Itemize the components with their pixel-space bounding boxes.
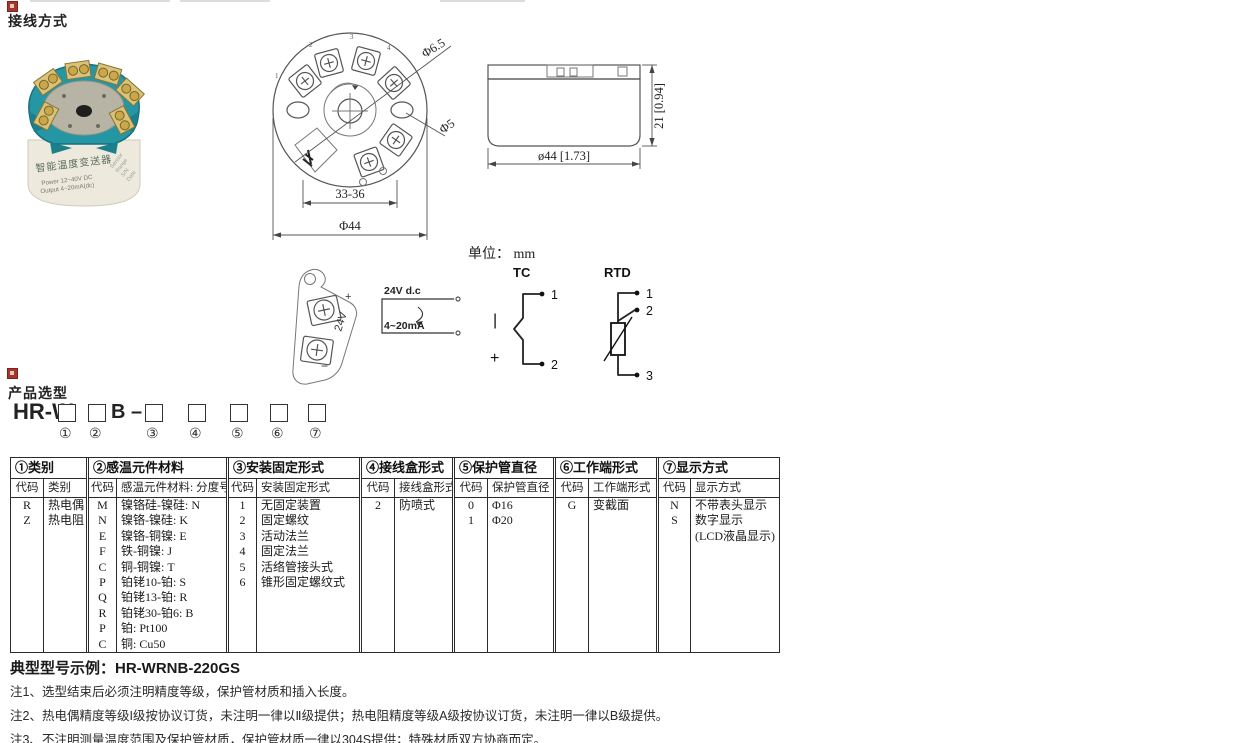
note-1: 注1、选型结束后必须注明精度等级，保护管材质和插入长度。 [10,681,354,700]
tc-terminal-1: 1 [551,288,558,302]
table-cell: 防喷式 [399,498,452,513]
table-cell: R [89,606,116,621]
table-cell: 铂铑30-铂6: B [121,606,226,621]
table-cell: C [89,560,116,575]
table-cell: Z [11,513,43,528]
table-group-junction-box: ④接线盒形式 代码 接线盒形式 2 防喷式 [362,458,455,652]
model-digit-5: ⑤ [231,425,244,442]
table-cell: E [89,529,116,544]
table-cell: 活动法兰 [261,529,359,544]
table-cell: 5 [229,560,256,575]
table-cell: 铜: Cu50 [121,637,226,652]
table-cell [659,529,690,544]
table-group-header: ②感温元件材料 [89,458,226,479]
table-subheader-label: 工作端形式 [589,479,656,497]
table-group-header: ④接线盒形式 [362,458,452,479]
table-cell: N [89,513,116,528]
table-cell: 变截面 [593,498,656,513]
table-cell: 固定法兰 [261,544,359,559]
table-cell: 固定螺纹 [261,513,359,528]
model-code-box-5 [230,404,248,422]
table-subheader-label: 显示方式 [691,479,779,497]
table-cell: 4 [229,544,256,559]
side-view-drawing: 21 [0.94] ø44 [1.73] [475,42,670,177]
table-subheader-code: 代码 [362,479,395,497]
table-subheader-label: 安装固定形式 [257,479,359,497]
table-subheader-label: 感温元件材料: 分度号 [117,479,226,497]
table-cell: (LCD液晶显示) [695,529,779,544]
table-cell: Φ20 [492,513,553,528]
table-group-header: ⑦显示方式 [659,458,779,479]
table-cell: 镍铬-镍硅: K [121,513,226,528]
table-cell: F [89,544,116,559]
model-code-box-3 [145,404,163,422]
table-subheader-label: 保护管直径 [488,479,553,497]
page-top-remnant [180,0,270,2]
model-code-box-4 [188,404,206,422]
table-cell: 1 [229,498,256,513]
topview-terminal-4: 4 [387,44,391,52]
table-subheader-code: 代码 [659,479,691,497]
model-digit-7: ⑦ [309,425,322,442]
example-label: 典型型号示例： [10,660,115,677]
table-cell: Q [89,590,116,605]
table-group-element-material: ②感温元件材料 代码 感温元件材料: 分度号 M N E F C P Q R P… [89,458,229,652]
table-cell: N [659,498,690,513]
table-cell: 铜-铜镍: T [121,560,226,575]
unit-note: 单位： mm [468,243,535,263]
table-group-working-end: ⑥工作端形式 代码 工作端形式 G 变截面 [556,458,659,652]
dim-phi44: Φ44 [339,219,361,233]
loop-current-label: 4~20mA [384,320,425,332]
table-cell: 热电阻 [48,513,86,528]
table-cell: P [89,621,116,636]
loop-supply-label: 24V d.c [384,285,421,297]
model-code-box-2 [88,404,106,422]
table-cell: G [556,498,588,513]
table-group-mounting: ③安装固定形式 代码 安装固定形式 1 2 3 4 5 6 无固定装置 固定螺纹… [229,458,362,652]
page-top-remnant [30,0,170,2]
table-cell: 铂: Pt100 [121,621,226,636]
dim-phi65: Φ6.5 [419,36,447,61]
table-cell: 镍铬硅-镍硅: N [121,498,226,513]
note-2: 注2、热电偶精度等级I级按协议订货，未注明一律以Ⅱ级提供；热电阻精度等级A级按协… [10,705,668,724]
table-subheader-code: 代码 [11,479,44,497]
example-value: HR-WRNB-220GS [115,660,240,677]
rtd-schematic: RTD 1 2 3 [578,263,663,393]
dim-width-44: ø44 [1.73] [538,149,590,163]
selection-table: ①类别 代码 类别 R Z 热电偶 热电阻 ②感温元件材料 代码 感温元件材料: [10,457,780,653]
table-cell: 铂铑10-铂: S [121,575,226,590]
model-digit-3: ③ [146,425,159,442]
table-cell: 活络管接头式 [261,560,359,575]
note-3: 注3、不注明测量温度范围及保护管材质，保护管材质一律以304S提供；特殊材质双方… [10,729,546,743]
model-code-box-6 [270,404,288,422]
table-group-display-mode: ⑦显示方式 代码 显示方式 N S 不带表头显示 数字显示 (LCD液晶显示) [659,458,779,652]
table-cell: C [89,637,116,652]
clip-minus-sign: − [321,359,328,373]
table-subheader-code: 代码 [89,479,117,497]
topview-terminal-2: 2 [309,41,313,49]
section-title-wiring: 接线方式 [8,11,68,31]
rtd-terminal-2: 2 [646,304,653,318]
tc-schematic: TC 1 2 | + [483,263,568,393]
model-code-box-7 [308,404,326,422]
model-code-box-1 [58,404,76,422]
table-cell: 3 [229,529,256,544]
topview-terminal-3: 3 [350,33,354,41]
rtd-terminal-3: 3 [646,369,653,383]
table-group-header: ③安装固定形式 [229,458,359,479]
page-top-remnant [440,0,525,2]
catalog-page: 接线方式 智能温度变送器 Power 12~40V DC Output 4~20… [0,0,1251,743]
table-cell: 数字显示 [695,513,779,528]
table-subheader-code: 代码 [556,479,589,497]
top-view-drawing: 1 2 3 4 Φ6.5 Φ5 33-36 Φ44 [265,30,465,245]
table-group-header: ⑥工作端形式 [556,458,656,479]
table-cell: 铁-铜镍: J [121,544,226,559]
table-cell: 6 [229,575,256,590]
model-digit-6: ⑥ [271,425,284,442]
clip-drawing: + 24V − [283,268,368,393]
dim-height-21: 21 [0.94] [652,83,666,129]
table-cell: 2 [362,498,394,513]
table-group-tube-diameter: ⑤保护管直径 代码 保护管直径 0 1 Φ16 Φ20 [455,458,556,652]
table-cell: 无固定装置 [261,498,359,513]
rtd-title: RTD [604,265,631,280]
table-cell: P [89,575,116,590]
table-subheader-label: 接线盒形式 [395,479,452,497]
tc-title: TC [513,265,531,280]
table-cell: 2 [229,513,256,528]
section-marker-icon [7,368,18,379]
tc-plus-mark: + [490,350,499,367]
table-group-category: ①类别 代码 类别 R Z 热电偶 热电阻 [11,458,89,652]
table-cell: S [659,513,690,528]
rtd-terminal-1: 1 [646,287,653,301]
table-cell: 不带表头显示 [695,498,779,513]
table-cell: 0 [455,498,487,513]
table-subheader-code: 代码 [229,479,257,497]
table-subheader-code: 代码 [455,479,488,497]
model-mid-code: B – [111,401,142,424]
table-cell: Φ16 [492,498,553,513]
model-digit-1: ① [59,425,72,442]
topview-terminal-1: 1 [275,72,279,80]
table-cell: 锥形固定螺纹式 [261,575,359,590]
model-digit-2: ② [89,425,102,442]
table-cell: 1 [455,513,487,528]
table-group-header: ⑤保护管直径 [455,458,553,479]
table-cell: 镍铬-铜镍: E [121,529,226,544]
tc-terminal-2: 2 [551,358,558,372]
clip-voltage-label: 24V [332,310,350,333]
dim-33-36: 33-36 [335,187,364,201]
product-photo: 智能温度变送器 Power 12~40V DC Output 4~20mA(dc… [10,56,160,208]
table-group-header: ①类别 [11,458,86,479]
typical-model-example: 典型型号示例：HR-WRNB-220GS [10,657,240,678]
table-cell: R [11,498,43,513]
clip-plus-sign: + [345,291,351,303]
table-subheader-label: 类别 [44,479,86,497]
table-cell: 热电偶 [48,498,86,513]
model-digit-4: ④ [189,425,202,442]
table-cell: 铂铑13-铂: R [121,590,226,605]
table-cell: M [89,498,116,513]
loop-diagram: 24V d.c 4~20mA [368,283,473,353]
tc-minus-mark: | [493,312,497,329]
